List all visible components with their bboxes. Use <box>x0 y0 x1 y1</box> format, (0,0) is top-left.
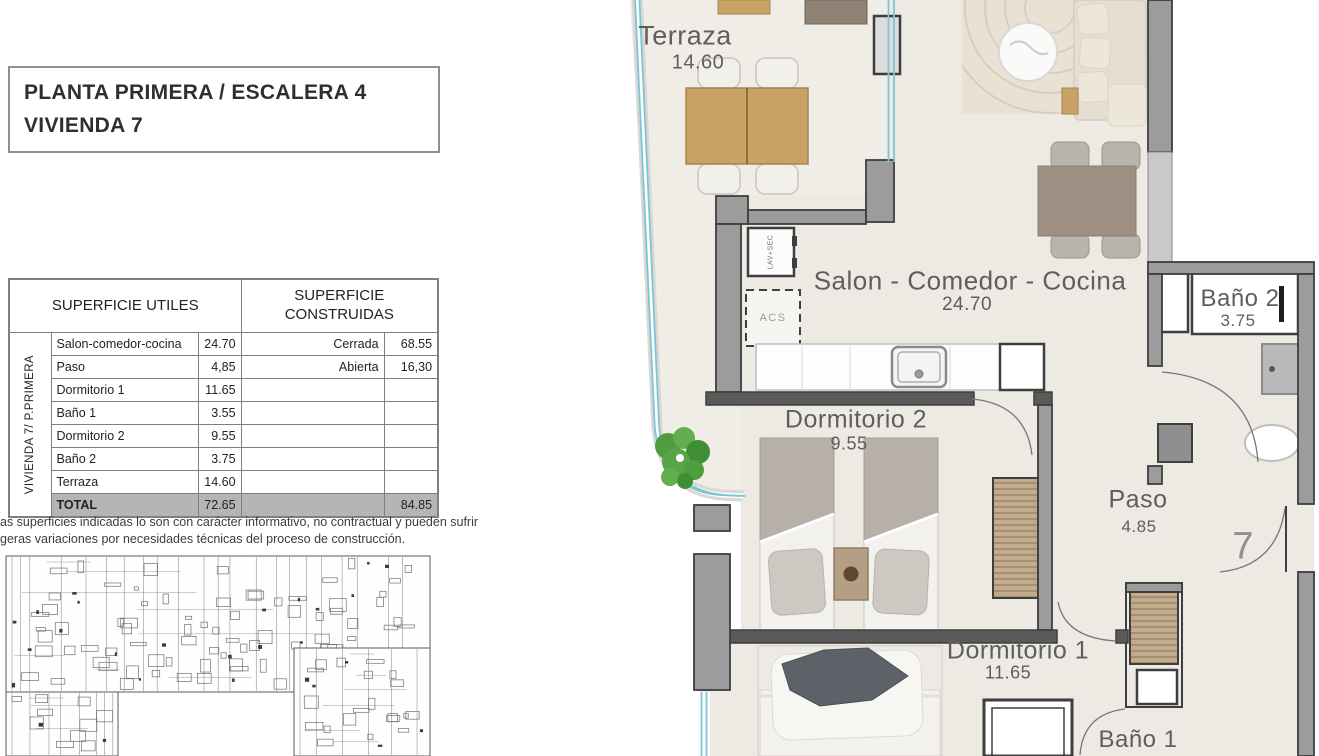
built-name-cell: Abierta <box>241 356 384 379</box>
chair <box>1051 234 1089 258</box>
overview-plan <box>0 548 442 756</box>
table-row: VIVIENDA 7/ P.PRIMERA Salon-comedor-coci… <box>9 333 438 356</box>
room-label-paso: Paso <box>1109 486 1168 515</box>
chair <box>756 164 798 194</box>
room-area-paso: 4.85 <box>1121 517 1156 537</box>
built-area-cell: 16,30 <box>384 356 438 379</box>
refrigerator <box>1000 344 1044 390</box>
table-row: Terraza 14.60 <box>9 471 438 494</box>
bed-single-2 <box>864 438 938 634</box>
room-name-cell: Terraza <box>51 471 198 494</box>
shaft <box>1137 670 1177 704</box>
hall-wardrobe <box>1130 592 1178 664</box>
room-label-dormitorio1: Dormitorio 1 <box>947 637 1089 666</box>
terrace-cabinet <box>805 0 867 24</box>
room-area-cell: 3.55 <box>198 402 241 425</box>
built-name-cell: Cerrada <box>241 333 384 356</box>
floor-plan: Terraza 14.60 Salon - Comedor - Cocina 2… <box>610 0 1319 756</box>
glass-door-post <box>874 16 900 74</box>
title-block: PLANTA PRIMERA / ESCALERA 4 VIVIENDA 7 <box>8 66 440 153</box>
shower-screen <box>1279 286 1284 322</box>
room-name-cell: Baño 1 <box>51 402 198 425</box>
areas-table: SUPERFICIE UTILES SUPERFICIE CONSTRUIDAS… <box>8 278 439 518</box>
nightstand <box>834 548 868 600</box>
room-area-cell: 24.70 <box>198 333 241 356</box>
room-area-salon: 24.70 <box>942 294 992 316</box>
cabinet <box>1158 424 1192 462</box>
water-heater-label: ACS <box>759 312 786 324</box>
room-label-bano1: Baño 1 <box>1098 726 1177 754</box>
disclaimer-line-2: geras variaciones por necesidades técnic… <box>0 531 480 548</box>
room-label-salon: Salon - Comedor - Cocina <box>814 266 1127 297</box>
chair <box>1102 234 1140 258</box>
shower-tray <box>984 700 1072 756</box>
bed-single-1 <box>760 438 834 634</box>
disclaimer: as superficies indicadas lo son con cará… <box>0 514 480 548</box>
title-line-1: PLANTA PRIMERA / ESCALERA 4 <box>24 77 424 110</box>
sofa <box>1062 0 1146 126</box>
bed-double <box>758 646 942 756</box>
dining-table <box>1038 166 1136 236</box>
room-area-dormitorio1: 11.65 <box>985 663 1031 684</box>
coffee-table <box>999 23 1057 81</box>
room-area-terraza: 14.60 <box>672 52 725 75</box>
indoor-dining-set <box>1038 142 1140 258</box>
unit-number: 7 <box>1232 526 1253 569</box>
table-side-label: VIVIENDA 7/ P.PRIMERA <box>24 355 36 494</box>
laundry-label: LAV+SEC <box>768 235 775 270</box>
built-area-cell: 68.55 <box>384 333 438 356</box>
wardrobe <box>993 478 1038 598</box>
kitchen-counter <box>756 344 1044 390</box>
table-row: Baño 1 3.55 <box>9 402 438 425</box>
chair <box>698 164 740 194</box>
table-row: Paso 4,85 Abierta 16,30 <box>9 356 438 379</box>
room-area-cell: 9.55 <box>198 425 241 448</box>
room-label-dormitorio2: Dormitorio 2 <box>785 406 927 435</box>
table-row: Baño 2 3.75 <box>9 448 438 471</box>
disclaimer-line-1: as superficies indicadas lo son con cará… <box>0 514 480 531</box>
room-name-cell: Paso <box>51 356 198 379</box>
table-header-construidas: SUPERFICIE CONSTRUIDAS <box>241 279 438 333</box>
chair <box>756 58 798 88</box>
room-name-cell: Baño 2 <box>51 448 198 471</box>
room-label-bano2: Baño 2 <box>1200 285 1279 313</box>
room-area-bano2: 3.75 <box>1220 311 1255 331</box>
room-label-terraza: Terraza <box>638 21 732 52</box>
room-name-cell: Dormitorio 2 <box>51 425 198 448</box>
table-header-utiles: SUPERFICIE UTILES <box>9 279 241 333</box>
toilet <box>1245 425 1299 461</box>
room-area-cell: 14.60 <box>198 471 241 494</box>
room-area-cell: 4,85 <box>198 356 241 379</box>
room-name-cell: Salon-comedor-cocina <box>51 333 198 356</box>
table-row: Dormitorio 1 11.65 <box>9 379 438 402</box>
room-area-dormitorio2: 9.55 <box>830 434 867 455</box>
room-area-cell: 11.65 <box>198 379 241 402</box>
room-area-cell: 3.75 <box>198 448 241 471</box>
title-line-2: VIVIENDA 7 <box>24 110 424 143</box>
terrace-shelf <box>718 0 770 14</box>
room-name-cell: Dormitorio 1 <box>51 379 198 402</box>
table-row: Dormitorio 2 9.55 <box>9 425 438 448</box>
